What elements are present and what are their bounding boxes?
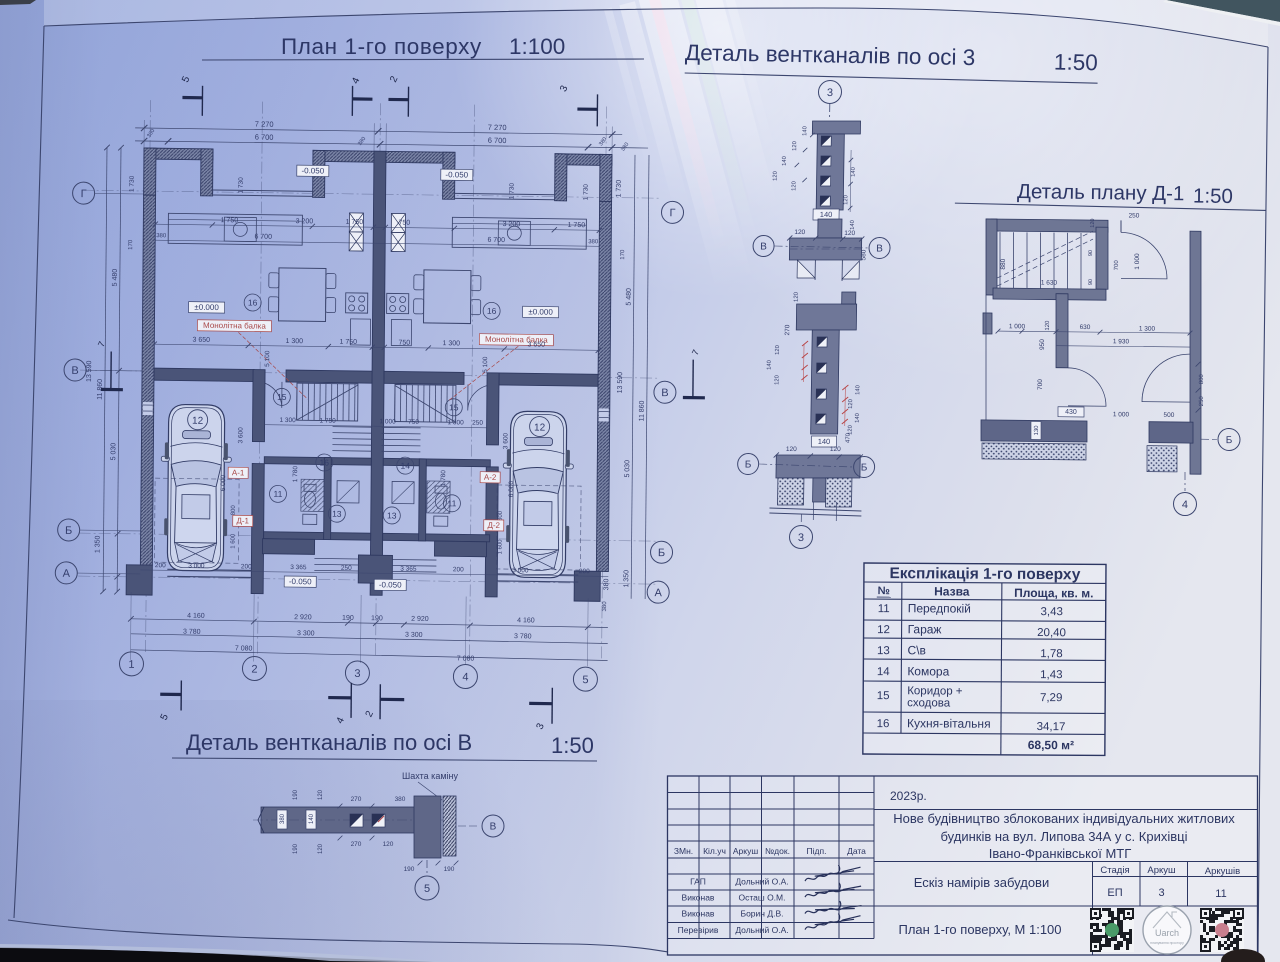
svg-text:140: 140	[850, 220, 856, 230]
svg-text:±0.000: ±0.000	[194, 303, 219, 312]
svg-text:В: В	[876, 244, 883, 255]
svg-text:13: 13	[332, 509, 342, 519]
svg-text:7 270: 7 270	[255, 120, 274, 129]
svg-text:Назва: Назва	[934, 584, 970, 598]
svg-text:3 365: 3 365	[290, 564, 307, 571]
svg-text:270: 270	[351, 796, 362, 803]
svg-text:4 160: 4 160	[187, 613, 205, 620]
svg-text:ГАП: ГАП	[690, 877, 706, 887]
svg-text:Аркуш: Аркуш	[733, 846, 758, 856]
svg-text:190: 190	[404, 866, 415, 873]
svg-text:1 300: 1 300	[279, 417, 296, 424]
svg-text:190: 190	[342, 615, 354, 622]
svg-text:сходова: сходова	[907, 697, 951, 709]
svg-text:1,78: 1,78	[1040, 648, 1062, 660]
svg-text:12: 12	[534, 422, 546, 433]
svg-text:3 365: 3 365	[400, 566, 417, 573]
svg-text:16: 16	[319, 457, 329, 467]
svg-text:4: 4	[1182, 499, 1188, 511]
svg-text:3 000: 3 000	[188, 563, 205, 570]
svg-text:Б: Б	[861, 463, 868, 474]
svg-text:15: 15	[277, 392, 287, 402]
svg-text:1 350: 1 350	[623, 570, 630, 588]
svg-text:1 600: 1 600	[497, 539, 503, 555]
svg-text:3 300: 3 300	[405, 632, 423, 639]
svg-text:Г: Г	[81, 188, 87, 200]
svg-text:120: 120	[843, 195, 849, 205]
svg-text:2 920: 2 920	[294, 614, 312, 621]
svg-text:800: 800	[498, 510, 504, 521]
svg-text:Г: Г	[669, 207, 675, 219]
svg-text:200: 200	[241, 563, 252, 570]
svg-text:140: 140	[309, 813, 315, 824]
svg-text:120: 120	[383, 841, 394, 848]
svg-text:13: 13	[877, 645, 890, 657]
svg-text:Дольний О.А.: Дольний О.А.	[735, 877, 788, 887]
svg-text:3,43: 3,43	[1040, 606, 1062, 618]
svg-text:140: 140	[818, 437, 831, 446]
svg-text:1 300: 1 300	[1139, 326, 1156, 333]
svg-text:380: 380	[603, 578, 610, 590]
svg-text:Стадія: Стадія	[1100, 865, 1129, 876]
svg-text:380: 380	[602, 601, 608, 612]
svg-text:11: 11	[447, 498, 456, 508]
svg-text:3 000: 3 000	[512, 567, 529, 574]
svg-text:Коридор +: Коридор +	[907, 685, 963, 697]
svg-text:А-1: А-1	[232, 468, 245, 477]
svg-text:2: 2	[251, 663, 257, 675]
svg-text:120: 120	[774, 375, 780, 385]
svg-text:270: 270	[784, 324, 791, 335]
svg-text:130: 130	[1034, 425, 1040, 436]
svg-text:120: 120	[775, 345, 781, 355]
svg-text:120: 120	[773, 171, 779, 181]
svg-text:1 930: 1 930	[1113, 338, 1130, 345]
svg-text:Виконав: Виконав	[682, 893, 715, 903]
svg-text:4: 4	[462, 671, 468, 683]
svg-text:14: 14	[877, 666, 890, 678]
svg-text:4 160: 4 160	[517, 617, 535, 624]
svg-text:Д-1: Д-1	[236, 516, 249, 525]
svg-text:1 750: 1 750	[221, 217, 239, 224]
svg-text:13 590: 13 590	[617, 372, 624, 394]
svg-text:7 080: 7 080	[235, 645, 253, 652]
svg-text:11 860: 11 860	[639, 400, 646, 421]
svg-text:А: А	[654, 587, 662, 599]
svg-text:Борин Д.В.: Борин Д.В.	[741, 909, 784, 919]
svg-text:140: 140	[855, 413, 861, 423]
svg-text:А-2: А-2	[484, 473, 497, 482]
svg-text:3 780: 3 780	[514, 633, 532, 640]
svg-text:250: 250	[472, 420, 483, 427]
svg-text:1 630: 1 630	[1041, 280, 1058, 287]
svg-text:А: А	[63, 568, 71, 580]
svg-text:120: 120	[318, 789, 324, 800]
svg-text:1 780: 1 780	[440, 470, 447, 487]
svg-text:3 650: 3 650	[528, 341, 546, 348]
svg-text:1:50: 1:50	[551, 733, 594, 758]
svg-text:1: 1	[128, 659, 134, 671]
svg-text:Експлікація 1-го поверху: Експлікація 1-го поверху	[889, 565, 1080, 583]
svg-text:170: 170	[620, 249, 626, 260]
svg-text:6 000: 6 000	[508, 481, 515, 498]
svg-text:В: В	[71, 365, 78, 377]
svg-text:3 300: 3 300	[297, 630, 315, 637]
svg-text:±0.000: ±0.000	[528, 307, 553, 316]
svg-text:7 270: 7 270	[488, 123, 507, 132]
svg-text:1 000: 1 000	[1113, 411, 1130, 418]
svg-text:880: 880	[1000, 258, 1007, 269]
svg-text:3 600: 3 600	[237, 427, 244, 444]
svg-text:1 000: 1 000	[1009, 323, 1026, 330]
svg-text:Аркушів: Аркушів	[1205, 866, 1240, 877]
svg-text:90: 90	[1088, 250, 1094, 256]
svg-text:Аркуш: Аркуш	[1147, 865, 1175, 876]
svg-text:-0.050: -0.050	[289, 577, 312, 586]
svg-text:190: 190	[293, 843, 299, 854]
svg-text:-0.050: -0.050	[301, 166, 324, 175]
svg-text:6 700: 6 700	[487, 237, 505, 244]
svg-text:270: 270	[351, 841, 362, 848]
svg-text:Виконав: Виконав	[682, 909, 715, 919]
svg-text:С\в: С\в	[907, 643, 925, 657]
svg-text:Осташ О.М.: Осташ О.М.	[739, 893, 786, 903]
svg-text:1 300: 1 300	[447, 419, 464, 426]
svg-text:11: 11	[274, 489, 283, 499]
svg-text:Деталь вентканалів по осі 3: Деталь вентканалів по осі 3	[685, 40, 976, 70]
svg-text:6 700: 6 700	[488, 136, 507, 145]
svg-text:3 200: 3 200	[503, 221, 521, 228]
svg-text:380: 380	[395, 796, 406, 803]
svg-text:Б: Б	[1226, 435, 1233, 446]
svg-text:750: 750	[398, 340, 410, 347]
svg-text:6 000: 6 000	[220, 475, 227, 492]
svg-text:700: 700	[1037, 379, 1044, 390]
svg-text:14: 14	[400, 461, 410, 471]
svg-text:1:50: 1:50	[1193, 184, 1233, 208]
svg-text:Перевірив: Перевірив	[678, 925, 719, 935]
svg-text:12: 12	[877, 624, 890, 636]
svg-text:13: 13	[387, 510, 397, 520]
svg-text:120: 120	[791, 181, 797, 191]
svg-text:В: В	[760, 242, 767, 253]
svg-text:200: 200	[155, 562, 166, 569]
svg-text:Б: Б	[745, 460, 752, 471]
svg-text:5 480: 5 480	[112, 269, 119, 287]
svg-text:6 700: 6 700	[255, 133, 274, 142]
svg-text:11: 11	[878, 603, 890, 615]
svg-text:1 600: 1 600	[231, 533, 237, 549]
svg-text:Uarch: Uarch	[1155, 928, 1179, 938]
svg-text:3: 3	[798, 532, 804, 544]
svg-text:5 480: 5 480	[626, 288, 633, 306]
svg-text:120: 120	[1045, 320, 1051, 331]
svg-text:120: 120	[792, 141, 798, 151]
svg-text:20,40: 20,40	[1037, 627, 1066, 639]
svg-text:№док.: №док.	[765, 846, 790, 856]
svg-text:15: 15	[877, 690, 890, 702]
svg-text:7,29: 7,29	[1040, 692, 1062, 704]
svg-text:13 590: 13 590	[86, 360, 93, 382]
svg-text:11: 11	[1215, 888, 1226, 900]
svg-text:1 730: 1 730	[616, 180, 623, 198]
svg-text:15: 15	[449, 402, 459, 412]
svg-text:1 750: 1 750	[346, 219, 364, 226]
svg-text:500: 500	[1164, 412, 1175, 419]
svg-text:3 650: 3 650	[193, 337, 211, 344]
svg-text:Кіл.уч: Кіл.уч	[703, 846, 726, 856]
svg-text:190: 190	[444, 866, 455, 873]
svg-text:140: 140	[782, 156, 788, 166]
svg-text:Комора: Комора	[907, 664, 949, 678]
svg-text:16: 16	[877, 718, 890, 730]
svg-text:800: 800	[231, 505, 237, 516]
svg-text:2 920: 2 920	[411, 616, 429, 623]
svg-text:5: 5	[424, 883, 430, 895]
svg-text:380: 380	[588, 239, 599, 245]
svg-text:ЗМн.: ЗМн.	[674, 846, 693, 856]
svg-text:190: 190	[293, 789, 299, 800]
svg-text:90: 90	[1088, 279, 1094, 285]
svg-text:Монолітна балка: Монолітна балка	[203, 321, 266, 331]
svg-text:В: В	[661, 387, 668, 399]
svg-text:План 1-го поверху: План 1-го поверху	[281, 34, 482, 59]
svg-text:68,50 м²: 68,50 м²	[1028, 738, 1074, 752]
svg-text:Дольний О.А.: Дольний О.А.	[735, 925, 788, 935]
svg-text:1 730: 1 730	[583, 184, 590, 201]
svg-text:34,17: 34,17	[1037, 721, 1066, 733]
svg-text:Підп.: Підп.	[807, 846, 827, 856]
svg-text:Д-2: Д-2	[487, 521, 500, 530]
svg-text:170: 170	[128, 239, 134, 250]
svg-text:1 780: 1 780	[292, 466, 299, 483]
svg-text:1 300: 1 300	[286, 338, 304, 345]
svg-text:-0.050: -0.050	[379, 580, 402, 589]
svg-text:1:50: 1:50	[1054, 49, 1098, 75]
svg-text:580: 580	[860, 249, 867, 260]
svg-text:1 750: 1 750	[319, 417, 336, 424]
svg-text:Шахта каміну: Шахта каміну	[402, 771, 458, 781]
svg-text:800: 800	[1199, 374, 1205, 385]
svg-text:120: 120	[848, 399, 854, 409]
svg-text:Івано-Франківської МТГ: Івано-Франківської МТГ	[989, 846, 1132, 861]
svg-text:1:100: 1:100	[509, 34, 565, 59]
svg-text:1 300: 1 300	[443, 340, 461, 347]
svg-text:120: 120	[794, 229, 805, 236]
svg-text:140: 140	[820, 210, 833, 219]
svg-text:-0.050: -0.050	[445, 170, 468, 179]
svg-text:250: 250	[341, 565, 352, 572]
svg-text:950: 950	[1039, 339, 1046, 350]
svg-text:1 730: 1 730	[238, 177, 245, 194]
svg-text:5 100: 5 100	[482, 356, 489, 373]
svg-text:5 030: 5 030	[110, 443, 117, 461]
svg-text:190: 190	[371, 615, 383, 622]
svg-text:1 350: 1 350	[94, 535, 101, 553]
svg-text:будинків на вул. Липова 34А у: будинків на вул. Липова 34А у с. Крихівц…	[941, 829, 1188, 844]
svg-text:1 750: 1 750	[340, 339, 358, 346]
svg-text:1 000: 1 000	[1134, 253, 1141, 270]
svg-text:3 600: 3 600	[502, 432, 509, 449]
svg-text:120: 120	[844, 230, 855, 237]
svg-text:Ескіз намірів забудови: Ескіз намірів забудови	[914, 875, 1049, 890]
svg-text:1 730: 1 730	[509, 183, 516, 200]
svg-text:В: В	[490, 822, 497, 833]
svg-text:200: 200	[453, 566, 464, 573]
svg-text:430: 430	[1065, 409, 1077, 416]
svg-text:1 750: 1 750	[568, 222, 586, 229]
svg-text:120: 120	[830, 446, 841, 453]
svg-text:планування простору: планування простору	[1150, 941, 1184, 945]
svg-text:3: 3	[354, 668, 360, 680]
svg-text:Площа, кв. м.: Площа, кв. м.	[1014, 586, 1093, 600]
svg-text:16: 16	[248, 297, 258, 307]
svg-text:750: 750	[408, 419, 419, 426]
svg-text:Б: Б	[65, 525, 72, 537]
svg-text:5 030: 5 030	[624, 460, 631, 478]
svg-text:3 200: 3 200	[296, 218, 314, 225]
svg-text:700: 700	[1114, 260, 1120, 271]
svg-text:120: 120	[1090, 218, 1096, 227]
svg-text:1 730: 1 730	[129, 175, 136, 192]
svg-text:ЕП: ЕП	[1107, 887, 1122, 899]
svg-text:№: №	[878, 585, 890, 597]
svg-text:140: 140	[855, 385, 861, 395]
svg-text:Деталь вентканалів по осі В: Деталь вентканалів по осі В	[186, 730, 472, 755]
svg-text:630: 630	[1080, 324, 1091, 331]
svg-text:12: 12	[192, 416, 204, 427]
svg-text:5 100: 5 100	[264, 350, 271, 367]
svg-text:Кухня-вітальня: Кухня-вітальня	[907, 716, 991, 731]
svg-text:6 700: 6 700	[254, 234, 272, 241]
svg-text:3: 3	[1158, 887, 1164, 899]
svg-text:Гараж: Гараж	[908, 622, 942, 636]
svg-text:Дата: Дата	[847, 846, 866, 856]
svg-text:380: 380	[156, 233, 167, 239]
svg-text:2023р.: 2023р.	[890, 789, 927, 803]
svg-text:140: 140	[767, 360, 773, 370]
svg-text:5: 5	[582, 674, 588, 686]
svg-text:120: 120	[318, 843, 324, 854]
svg-text:250: 250	[1199, 396, 1205, 407]
svg-text:Деталь плану Д-1: Деталь плану Д-1	[1017, 180, 1185, 205]
svg-text:Нове будівництво зблокованих і: Нове будівництво зблокованих індивідуаль…	[893, 811, 1235, 826]
svg-text:Б: Б	[658, 547, 665, 559]
svg-text:Передпокій: Передпокій	[908, 601, 971, 615]
svg-text:380: 380	[280, 813, 286, 824]
svg-text:250: 250	[1129, 212, 1140, 219]
svg-text:120: 120	[794, 291, 800, 302]
svg-text:120: 120	[848, 425, 854, 435]
svg-text:3 780: 3 780	[183, 629, 201, 636]
svg-text:140: 140	[802, 126, 808, 136]
svg-text:План 1-го поверху, М 1:100: План 1-го поверху, М 1:100	[898, 922, 1061, 937]
svg-text:1 000: 1 000	[379, 418, 396, 425]
svg-text:3: 3	[827, 87, 833, 99]
svg-text:1,43: 1,43	[1040, 669, 1062, 681]
svg-text:140: 140	[851, 167, 857, 177]
svg-text:200: 200	[579, 568, 590, 575]
svg-text:120: 120	[786, 446, 797, 453]
svg-text:750: 750	[399, 220, 411, 227]
svg-text:16: 16	[487, 306, 497, 316]
